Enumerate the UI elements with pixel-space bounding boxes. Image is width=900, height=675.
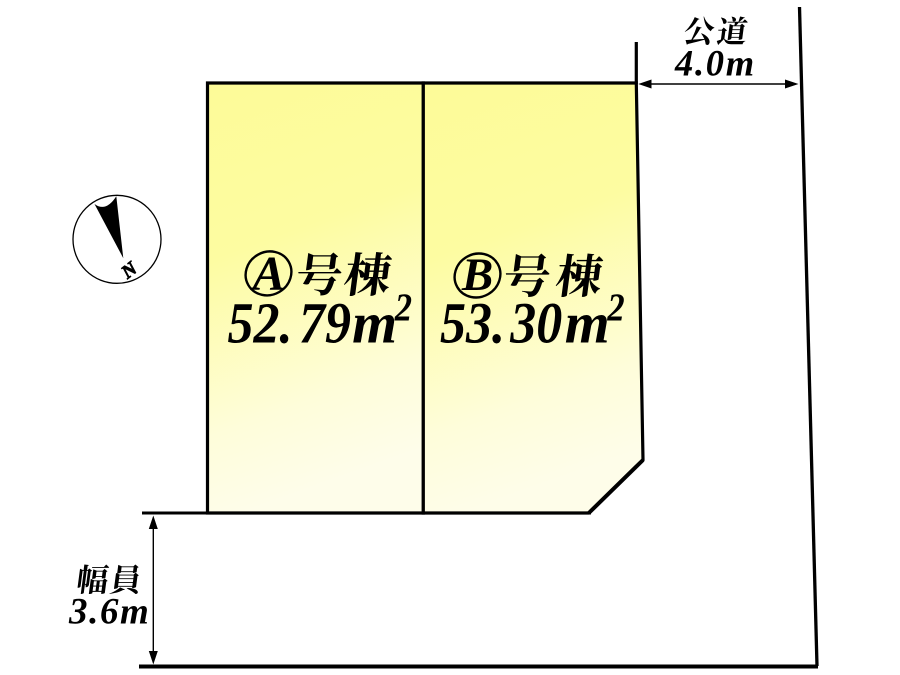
svg-text:4.0m: 4.0m: [674, 43, 756, 84]
svg-text:79: 79: [299, 291, 351, 356]
svg-text:52.: 52.: [228, 291, 293, 356]
svg-text:30: 30: [509, 291, 562, 356]
svg-text:2: 2: [394, 285, 412, 328]
svg-text:m: m: [565, 290, 610, 356]
svg-text:53.: 53.: [440, 291, 505, 356]
svg-text:3.6m: 3.6m: [68, 592, 150, 633]
svg-text:m: m: [352, 290, 397, 356]
svg-text:2: 2: [606, 285, 624, 328]
